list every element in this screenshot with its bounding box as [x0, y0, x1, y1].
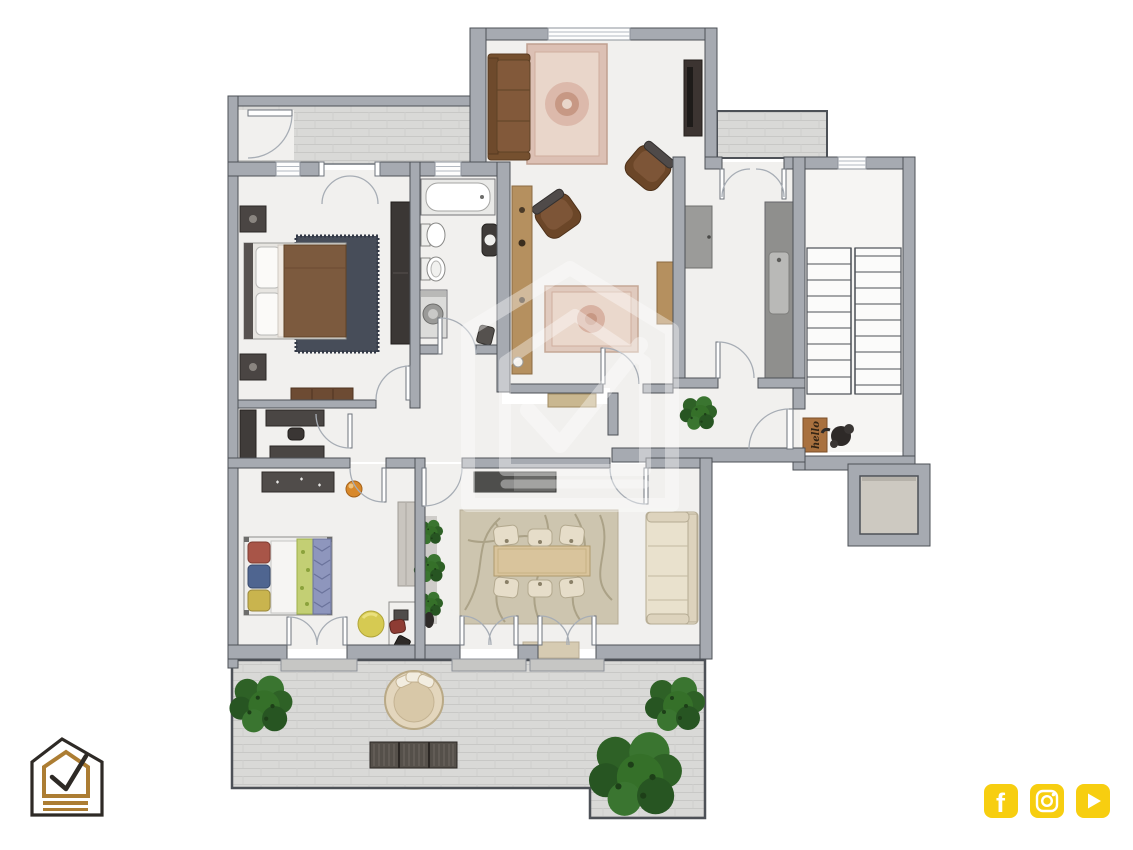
kids-wardrobe — [398, 502, 415, 586]
sofa — [488, 54, 530, 160]
desk-chair — [288, 428, 304, 440]
single-bed — [244, 537, 332, 615]
dressing-wardrobe — [240, 410, 256, 460]
window — [838, 157, 866, 169]
floor-plan-drawing: hello — [0, 0, 1133, 850]
nightstand — [240, 354, 266, 380]
balcony-porch — [238, 110, 294, 160]
nightstand — [240, 206, 266, 232]
washing-machine — [420, 290, 447, 338]
desk — [266, 410, 324, 426]
yellow-pouf — [358, 611, 384, 637]
elevator — [848, 464, 930, 546]
facebook-glyph: f — [996, 788, 1006, 818]
window — [276, 162, 300, 176]
hello-doormat: hello — [803, 418, 827, 452]
window — [548, 28, 630, 40]
wall-sink — [482, 224, 498, 256]
instagram-icon[interactable] — [1030, 784, 1064, 818]
double-bed — [244, 243, 346, 339]
slatted-bench — [370, 742, 457, 768]
youtube-icon[interactable] — [1076, 784, 1110, 818]
wardrobe — [391, 202, 410, 344]
house-checkmark-logo — [32, 739, 102, 815]
social-icons: f — [984, 784, 1110, 818]
dining-table — [494, 546, 590, 576]
sectional-sofa — [646, 512, 698, 624]
bathtub — [421, 179, 495, 215]
round-daybed — [385, 671, 443, 729]
bidet — [421, 223, 445, 247]
kitchen-counter — [765, 202, 793, 384]
wall-shelf — [262, 472, 334, 492]
facebook-icon[interactable]: f — [984, 784, 1018, 818]
toilet — [421, 257, 445, 281]
tv-cabinet — [684, 60, 702, 136]
window — [435, 162, 461, 176]
doormat-text: hello — [811, 421, 822, 449]
balcony-top-right-floor — [717, 111, 827, 158]
oriental-rug — [527, 44, 607, 164]
floor-plan-page: hello — [0, 0, 1133, 850]
